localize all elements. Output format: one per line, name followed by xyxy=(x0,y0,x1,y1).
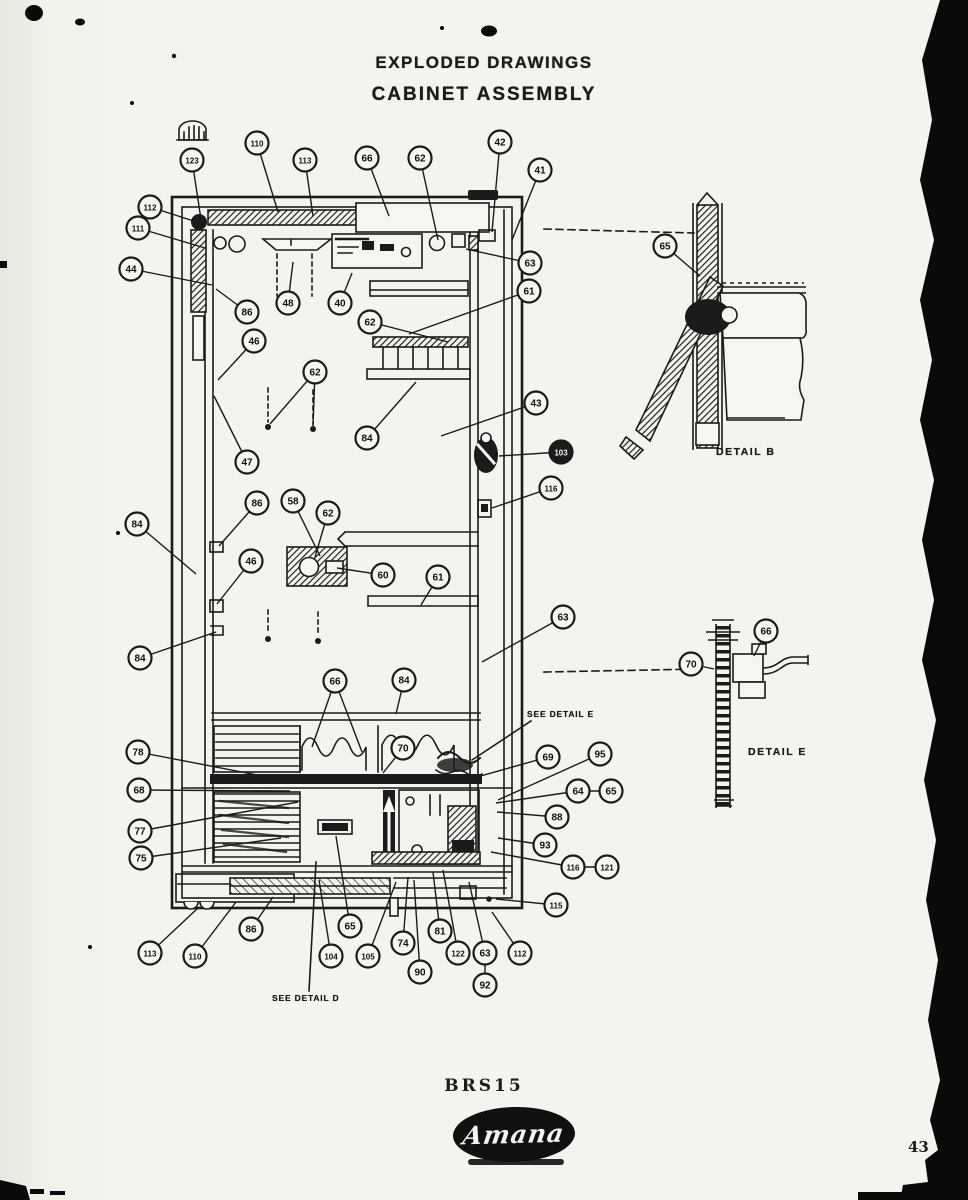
detail-e-label: DETAIL E xyxy=(748,746,807,758)
amana-logo-text: Amana xyxy=(461,1119,567,1151)
callout-number: 61 xyxy=(432,573,444,584)
callout-number: 47 xyxy=(241,458,253,469)
callout-number: 65 xyxy=(344,922,356,933)
callout-number: 44 xyxy=(125,265,137,276)
callout-number: 92 xyxy=(479,981,491,992)
callout-number: 40 xyxy=(334,299,346,310)
callout-number: 46 xyxy=(248,337,260,348)
detail-b-label: DETAIL B xyxy=(716,446,775,458)
detail-b-drawing xyxy=(620,193,806,459)
callout-number: 116 xyxy=(567,864,580,873)
callout-number: 93 xyxy=(539,841,551,852)
callout-number: 105 xyxy=(361,953,375,962)
callout-number: 75 xyxy=(135,854,147,865)
callout-number: 115 xyxy=(550,902,563,911)
callout-number: 116 xyxy=(545,485,558,494)
callout-number: 84 xyxy=(134,654,146,665)
logo-smudge xyxy=(468,1159,564,1165)
page-number: 43 xyxy=(908,1138,929,1156)
callout-number: 65 xyxy=(605,787,617,798)
callout-number: 113 xyxy=(144,950,157,959)
callout-number: 64 xyxy=(572,787,584,798)
callout-number: 66 xyxy=(329,677,341,688)
callout-number: 86 xyxy=(251,499,263,510)
exploded-drawing: 1231101136662424111211144864840624662478… xyxy=(0,0,968,1200)
callout-number: 62 xyxy=(309,368,321,379)
callout-number: 95 xyxy=(594,750,606,761)
callout-number: 88 xyxy=(551,813,563,824)
callout-number: 62 xyxy=(322,509,334,520)
callout-number: 103 xyxy=(554,449,568,458)
callout-number: 66 xyxy=(760,627,772,638)
callout-number: 48 xyxy=(282,299,294,310)
model-number: BRS15 xyxy=(444,1076,523,1096)
callout-number: 68 xyxy=(133,786,145,797)
callout-number: 86 xyxy=(241,308,253,319)
callout-number: 69 xyxy=(542,753,554,764)
scanned-parts-page: EXPLODED DRAWINGS CABINET ASSEMBLY xyxy=(0,0,968,1200)
callout-number: 123 xyxy=(185,157,199,166)
callout-number: 41 xyxy=(534,166,546,177)
callout-number: 78 xyxy=(132,748,144,759)
callout-number: 110 xyxy=(251,140,264,149)
callout-number: 70 xyxy=(685,660,697,671)
callout-number: 46 xyxy=(245,557,257,568)
callout-number: 90 xyxy=(414,968,426,979)
callout-number: 112 xyxy=(514,950,527,959)
callout-number: 60 xyxy=(377,571,389,582)
callout-number: 58 xyxy=(287,497,299,508)
callout-number: 42 xyxy=(494,138,506,149)
see-detail-d-note: SEE DETAIL D xyxy=(272,993,339,1003)
callout-number: 112 xyxy=(144,204,157,213)
see-detail-e-note: SEE DETAIL E xyxy=(527,709,594,719)
callout-number: 66 xyxy=(361,154,373,165)
callout-number: 62 xyxy=(364,318,376,329)
callout-number: 110 xyxy=(189,953,202,962)
callout-number: 122 xyxy=(451,950,465,959)
callout-number: 104 xyxy=(324,953,338,962)
callout-number: 84 xyxy=(398,676,410,687)
callout-number: 113 xyxy=(299,157,312,166)
callout-number: 63 xyxy=(479,949,491,960)
callout-number: 84 xyxy=(361,434,373,445)
callout-number: 121 xyxy=(600,864,614,873)
callout-number: 86 xyxy=(245,925,257,936)
callout-number: 43 xyxy=(530,399,542,410)
callout-number: 62 xyxy=(414,154,426,165)
callout-number: 70 xyxy=(397,744,409,755)
callout-number: 84 xyxy=(131,520,143,531)
callout-number: 65 xyxy=(659,242,671,253)
callout-number: 74 xyxy=(397,939,409,950)
scan-artifacts xyxy=(0,0,968,1200)
callout-number: 81 xyxy=(434,927,446,938)
callout-number: 61 xyxy=(523,287,535,298)
callout-number: 63 xyxy=(524,259,536,270)
callout-number: 111 xyxy=(132,225,145,234)
callout-number: 77 xyxy=(134,827,146,838)
callout-number: 63 xyxy=(557,613,569,624)
